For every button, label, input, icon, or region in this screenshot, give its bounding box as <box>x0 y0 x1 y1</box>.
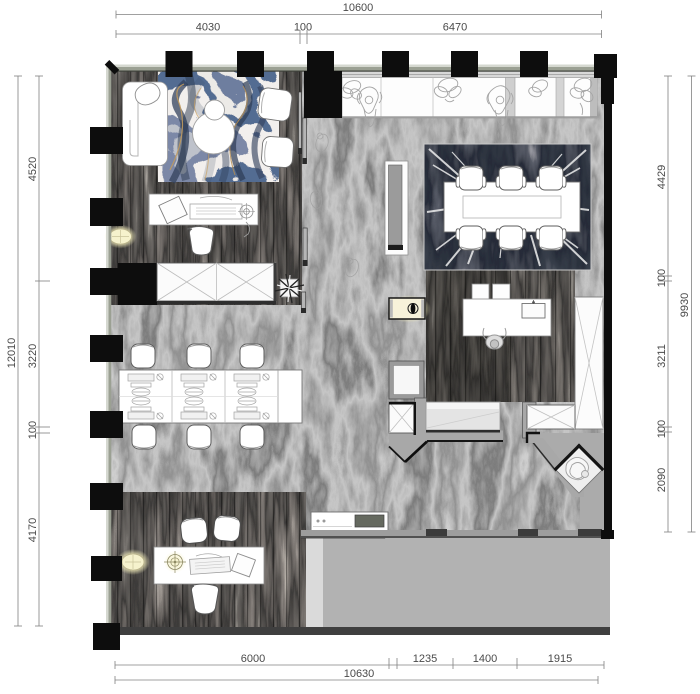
svg-text:4520: 4520 <box>27 157 39 181</box>
svg-text:4030: 4030 <box>196 22 220 34</box>
svg-text:9930: 9930 <box>679 293 691 317</box>
svg-text:4429: 4429 <box>656 165 668 189</box>
svg-text:6470: 6470 <box>443 22 467 34</box>
svg-text:100: 100 <box>656 420 668 438</box>
svg-text:3220: 3220 <box>27 344 39 368</box>
svg-text:4170: 4170 <box>27 518 39 542</box>
svg-text:6000: 6000 <box>241 653 265 665</box>
svg-text:1915: 1915 <box>548 653 572 665</box>
svg-text:12010: 12010 <box>6 338 18 369</box>
svg-text:10600: 10600 <box>343 2 374 14</box>
svg-text:1400: 1400 <box>473 653 497 665</box>
svg-text:100: 100 <box>27 421 39 439</box>
svg-text:2090: 2090 <box>656 468 668 492</box>
svg-text:100: 100 <box>656 269 668 287</box>
svg-text:100: 100 <box>294 22 312 34</box>
svg-text:10630: 10630 <box>344 668 375 680</box>
svg-text:3211: 3211 <box>656 344 668 368</box>
svg-text:1235: 1235 <box>413 653 437 665</box>
